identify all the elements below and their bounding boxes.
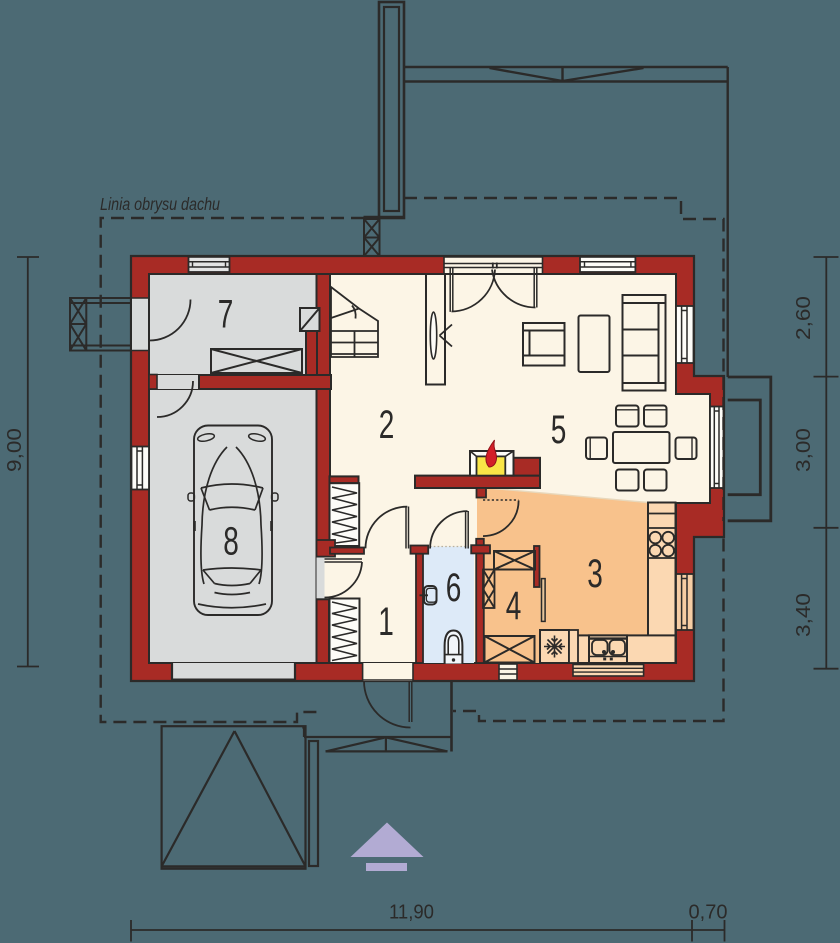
svg-text:2,60: 2,60 bbox=[793, 296, 815, 340]
svg-text:3,00: 3,00 bbox=[793, 428, 815, 472]
svg-text:3,40: 3,40 bbox=[793, 593, 815, 637]
svg-text:8: 8 bbox=[223, 520, 239, 564]
svg-text:6: 6 bbox=[446, 566, 462, 610]
svg-text:0,70: 0,70 bbox=[689, 902, 728, 924]
svg-text:2: 2 bbox=[379, 403, 395, 447]
svg-text:4: 4 bbox=[506, 584, 522, 628]
svg-text:5: 5 bbox=[551, 408, 567, 452]
svg-text:9,00: 9,00 bbox=[4, 428, 26, 472]
svg-text:7: 7 bbox=[218, 293, 234, 337]
svg-text:Linia obrysu dachu: Linia obrysu dachu bbox=[100, 194, 220, 214]
svg-text:3: 3 bbox=[587, 552, 603, 596]
svg-text:11,90: 11,90 bbox=[389, 902, 434, 924]
svg-text:1: 1 bbox=[378, 600, 394, 644]
